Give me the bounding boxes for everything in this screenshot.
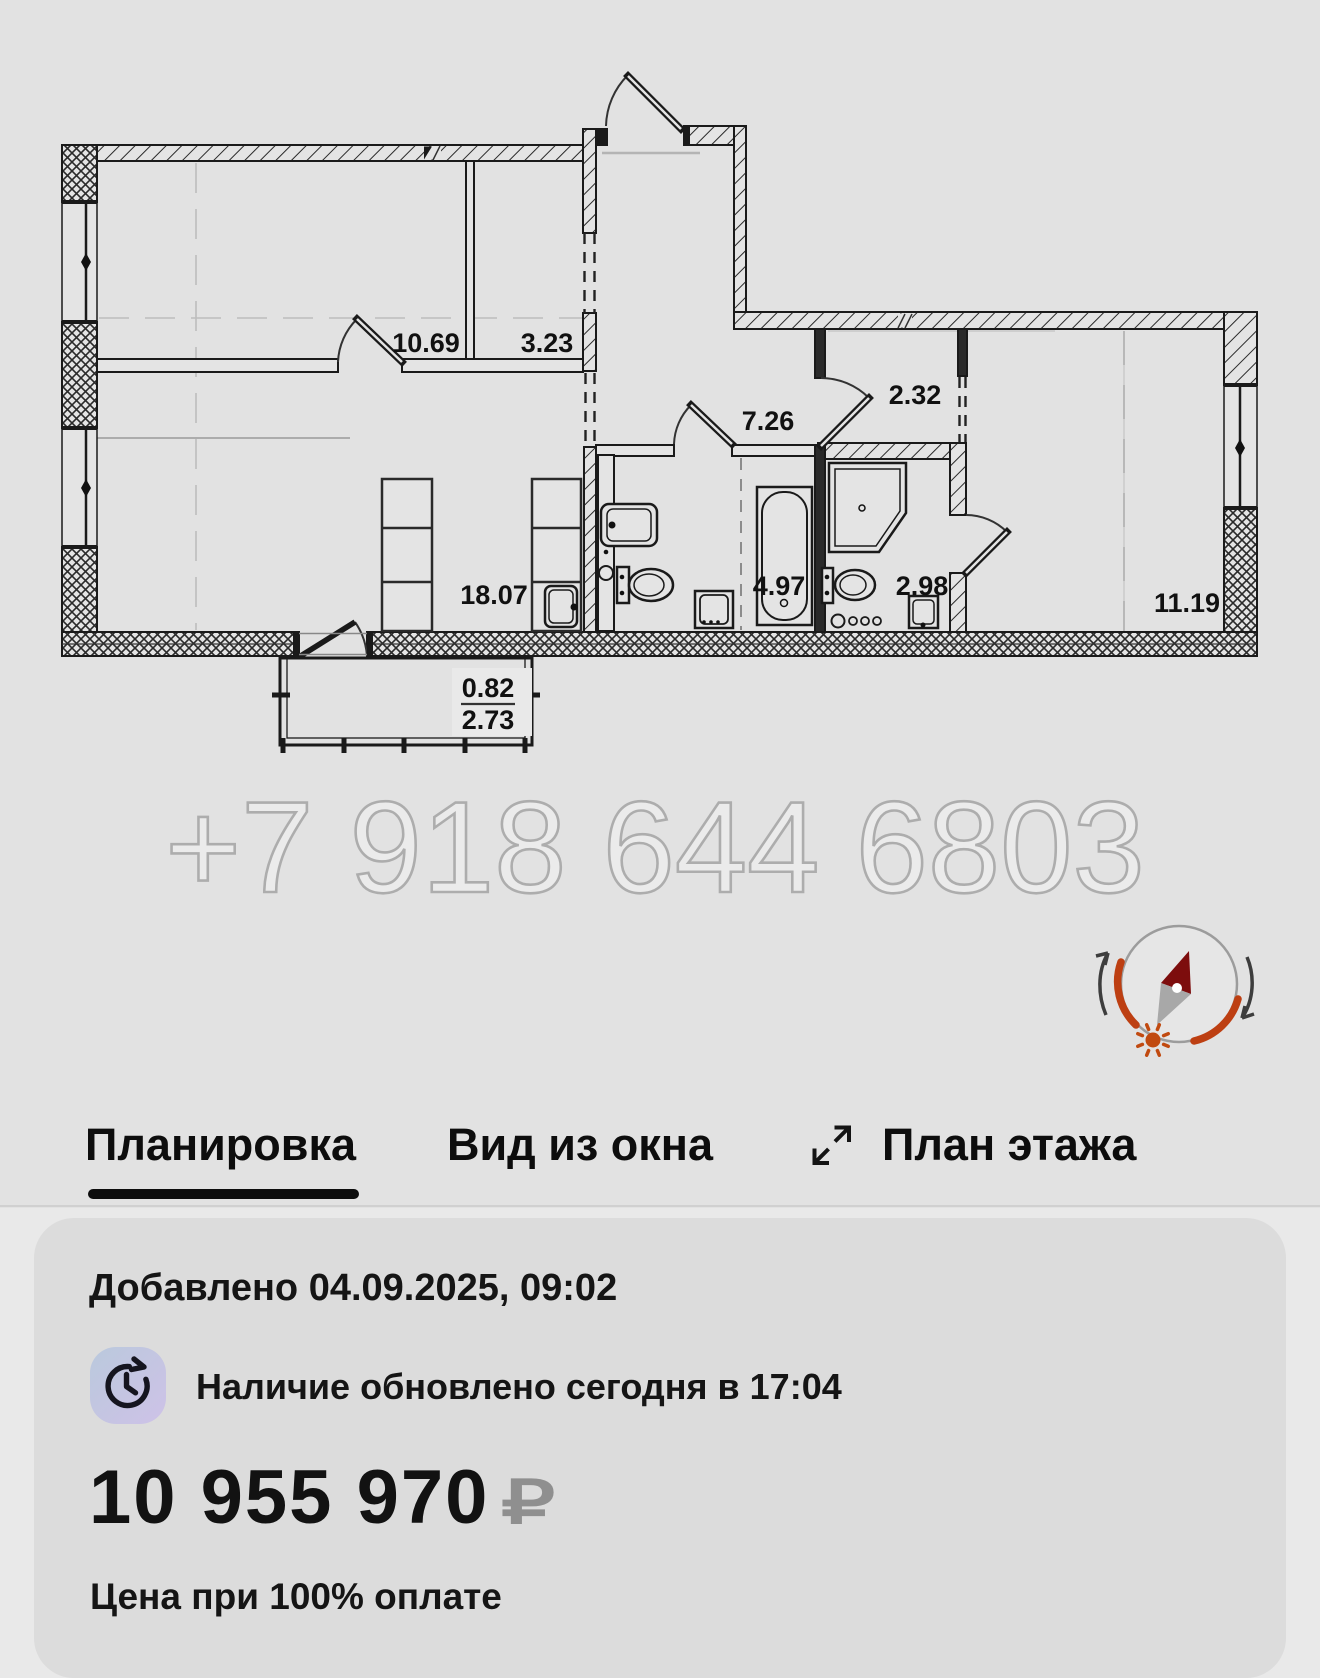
svg-text:11.19: 11.19 bbox=[1154, 588, 1220, 618]
svg-text:2.98: 2.98 bbox=[896, 571, 949, 601]
svg-text:0.82: 0.82 bbox=[462, 673, 515, 703]
svg-text:+7 918 644 6803: +7 918 644 6803 bbox=[165, 774, 1145, 920]
svg-text:4.97: 4.97 bbox=[753, 571, 806, 601]
svg-text:18.07: 18.07 bbox=[460, 580, 528, 610]
svg-text:10.69: 10.69 bbox=[392, 328, 460, 358]
svg-text:2.73: 2.73 bbox=[462, 705, 515, 735]
svg-text:2.32: 2.32 bbox=[889, 380, 942, 410]
svg-text:3.23: 3.23 bbox=[521, 328, 574, 358]
svg-text:7.26: 7.26 bbox=[742, 406, 795, 436]
